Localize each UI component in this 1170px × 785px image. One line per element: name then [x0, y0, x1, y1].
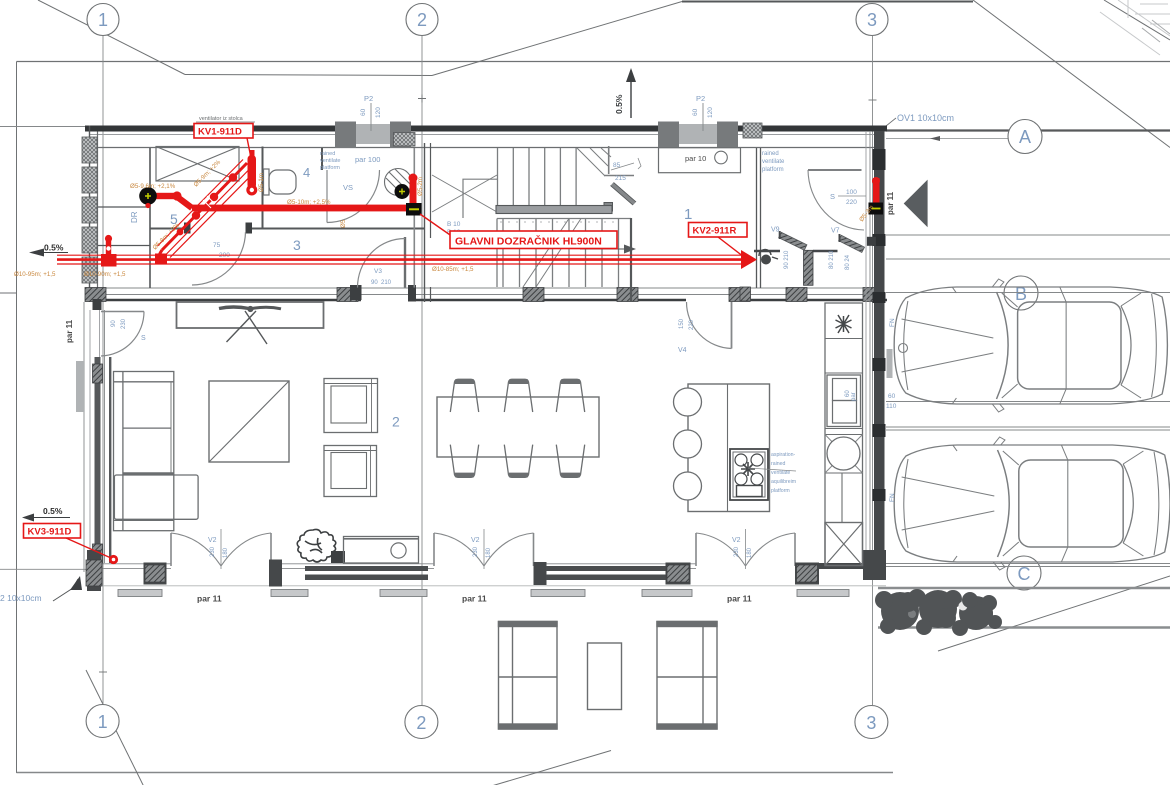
svg-text:GLAVNI DOZRAČNIK HL900N: GLAVNI DOZRAČNIK HL900N [455, 235, 602, 248]
svg-text:1: 1 [98, 10, 108, 30]
svg-text:ventilate: ventilate [762, 159, 785, 165]
svg-text:V7: V7 [831, 228, 840, 235]
svg-text:60: 60 [888, 393, 896, 400]
svg-text:FN: FN [889, 318, 896, 327]
svg-text:platform: platform [762, 167, 784, 173]
svg-text:V3: V3 [374, 268, 382, 275]
svg-text:ventilate: ventilate [771, 470, 790, 476]
svg-text:VS: VS [343, 183, 353, 192]
svg-text:ventilator iz stolca: ventilator iz stolca [199, 116, 244, 122]
svg-text:Ø5-9,6m; +2,1%: Ø5-9,6m; +2,1% [130, 183, 176, 190]
svg-text:3: 3 [293, 237, 301, 253]
svg-text:2 10x10cm: 2 10x10cm [0, 593, 42, 603]
svg-text:180: 180 [747, 547, 753, 558]
svg-text:1: 1 [684, 206, 692, 223]
svg-text:120: 120 [375, 107, 382, 118]
svg-text:OV1 10x10cm: OV1 10x10cm [897, 113, 954, 123]
svg-text:FN: FN [889, 493, 896, 502]
svg-text:V2: V2 [732, 537, 741, 544]
svg-text:60: 60 [692, 108, 699, 116]
svg-text:210: 210 [381, 280, 392, 286]
svg-text:90 210: 90 210 [784, 250, 790, 269]
svg-text:100: 100 [846, 189, 857, 196]
svg-text:DR: DR [130, 211, 139, 223]
svg-text:Ø10-85m; +1,5: Ø10-85m; +1,5 [432, 266, 474, 273]
svg-text:platform: platform [771, 488, 790, 494]
svg-text:KV2-911R: KV2-911R [693, 226, 737, 237]
svg-text:P2: P2 [364, 94, 373, 103]
svg-text:V9: V9 [771, 227, 780, 234]
svg-text:Ø5-2m: Ø5-2m [417, 177, 424, 196]
svg-text:V2: V2 [471, 537, 480, 544]
svg-text:Ø5-10m; +2,5%: Ø5-10m; +2,5% [287, 199, 331, 206]
svg-text:ventilate: ventilate [320, 158, 341, 164]
svg-text:par 100: par 100 [355, 155, 380, 164]
svg-text:2: 2 [416, 713, 426, 733]
svg-text:Ø5-1m: Ø5-1m [258, 173, 265, 192]
svg-text:platform: platform [320, 165, 340, 171]
svg-text:aquilibreim: aquilibreim [771, 479, 796, 485]
svg-text:80 24: 80 24 [845, 254, 851, 270]
svg-text:B 10: B 10 [447, 221, 461, 228]
svg-text:A: A [1019, 127, 1031, 147]
svg-text:230: 230 [121, 318, 127, 329]
svg-text:0.5%: 0.5% [43, 506, 63, 516]
svg-text:90: 90 [111, 320, 117, 327]
svg-text:par 10: par 10 [685, 154, 706, 163]
svg-text:0.5%: 0.5% [44, 243, 64, 253]
svg-text:180: 180 [223, 547, 229, 558]
svg-text:110: 110 [886, 403, 897, 410]
svg-text:230: 230 [210, 546, 216, 557]
svg-text:3: 3 [866, 713, 876, 733]
svg-text:Ø10-95m; +1,5: Ø10-95m; +1,5 [14, 271, 56, 278]
svg-text:KV3-911D: KV3-911D [28, 527, 72, 538]
svg-text:rained: rained [771, 461, 786, 467]
svg-text:par 11: par 11 [727, 594, 752, 604]
svg-text:V4: V4 [678, 347, 687, 354]
svg-text:180: 180 [486, 547, 492, 558]
svg-text:rained: rained [320, 151, 335, 157]
svg-text:230: 230 [734, 546, 740, 557]
svg-text:220: 220 [689, 319, 695, 330]
svg-text:230: 230 [473, 546, 479, 557]
svg-text:par 11: par 11 [65, 319, 74, 343]
svg-text:KV1-911D: KV1-911D [198, 127, 242, 138]
svg-text:150: 150 [679, 318, 685, 329]
svg-text:2: 2 [392, 414, 400, 430]
svg-text:1: 1 [98, 712, 108, 732]
svg-text:par 11: par 11 [886, 191, 895, 215]
svg-text:Ø10-90m; +1,5: Ø10-90m; +1,5 [84, 271, 126, 278]
svg-text:V2: V2 [208, 537, 217, 544]
svg-text:215: 215 [615, 175, 626, 182]
svg-text:S: S [141, 335, 146, 342]
svg-text:75: 75 [213, 242, 221, 249]
svg-text:90: 90 [371, 280, 378, 286]
svg-text:rained: rained [762, 151, 779, 157]
svg-text:par 11: par 11 [197, 594, 222, 604]
svg-text:aspiration-: aspiration- [771, 452, 795, 458]
svg-text:par 11: par 11 [462, 594, 487, 604]
svg-text:3: 3 [867, 10, 877, 30]
svg-text:120: 120 [707, 107, 714, 118]
svg-text:80 210: 80 210 [829, 250, 835, 269]
svg-text:C: C [1018, 564, 1031, 584]
svg-text:Ø5: Ø5 [340, 219, 347, 228]
svg-text:60: 60 [360, 108, 367, 116]
svg-text:P2: P2 [696, 94, 705, 103]
svg-text:2: 2 [417, 10, 427, 30]
svg-text:par: par [851, 392, 857, 401]
svg-text:4: 4 [303, 165, 310, 180]
svg-text:S: S [830, 192, 835, 201]
svg-text:0.5%: 0.5% [614, 94, 624, 114]
svg-text:220: 220 [846, 199, 857, 206]
